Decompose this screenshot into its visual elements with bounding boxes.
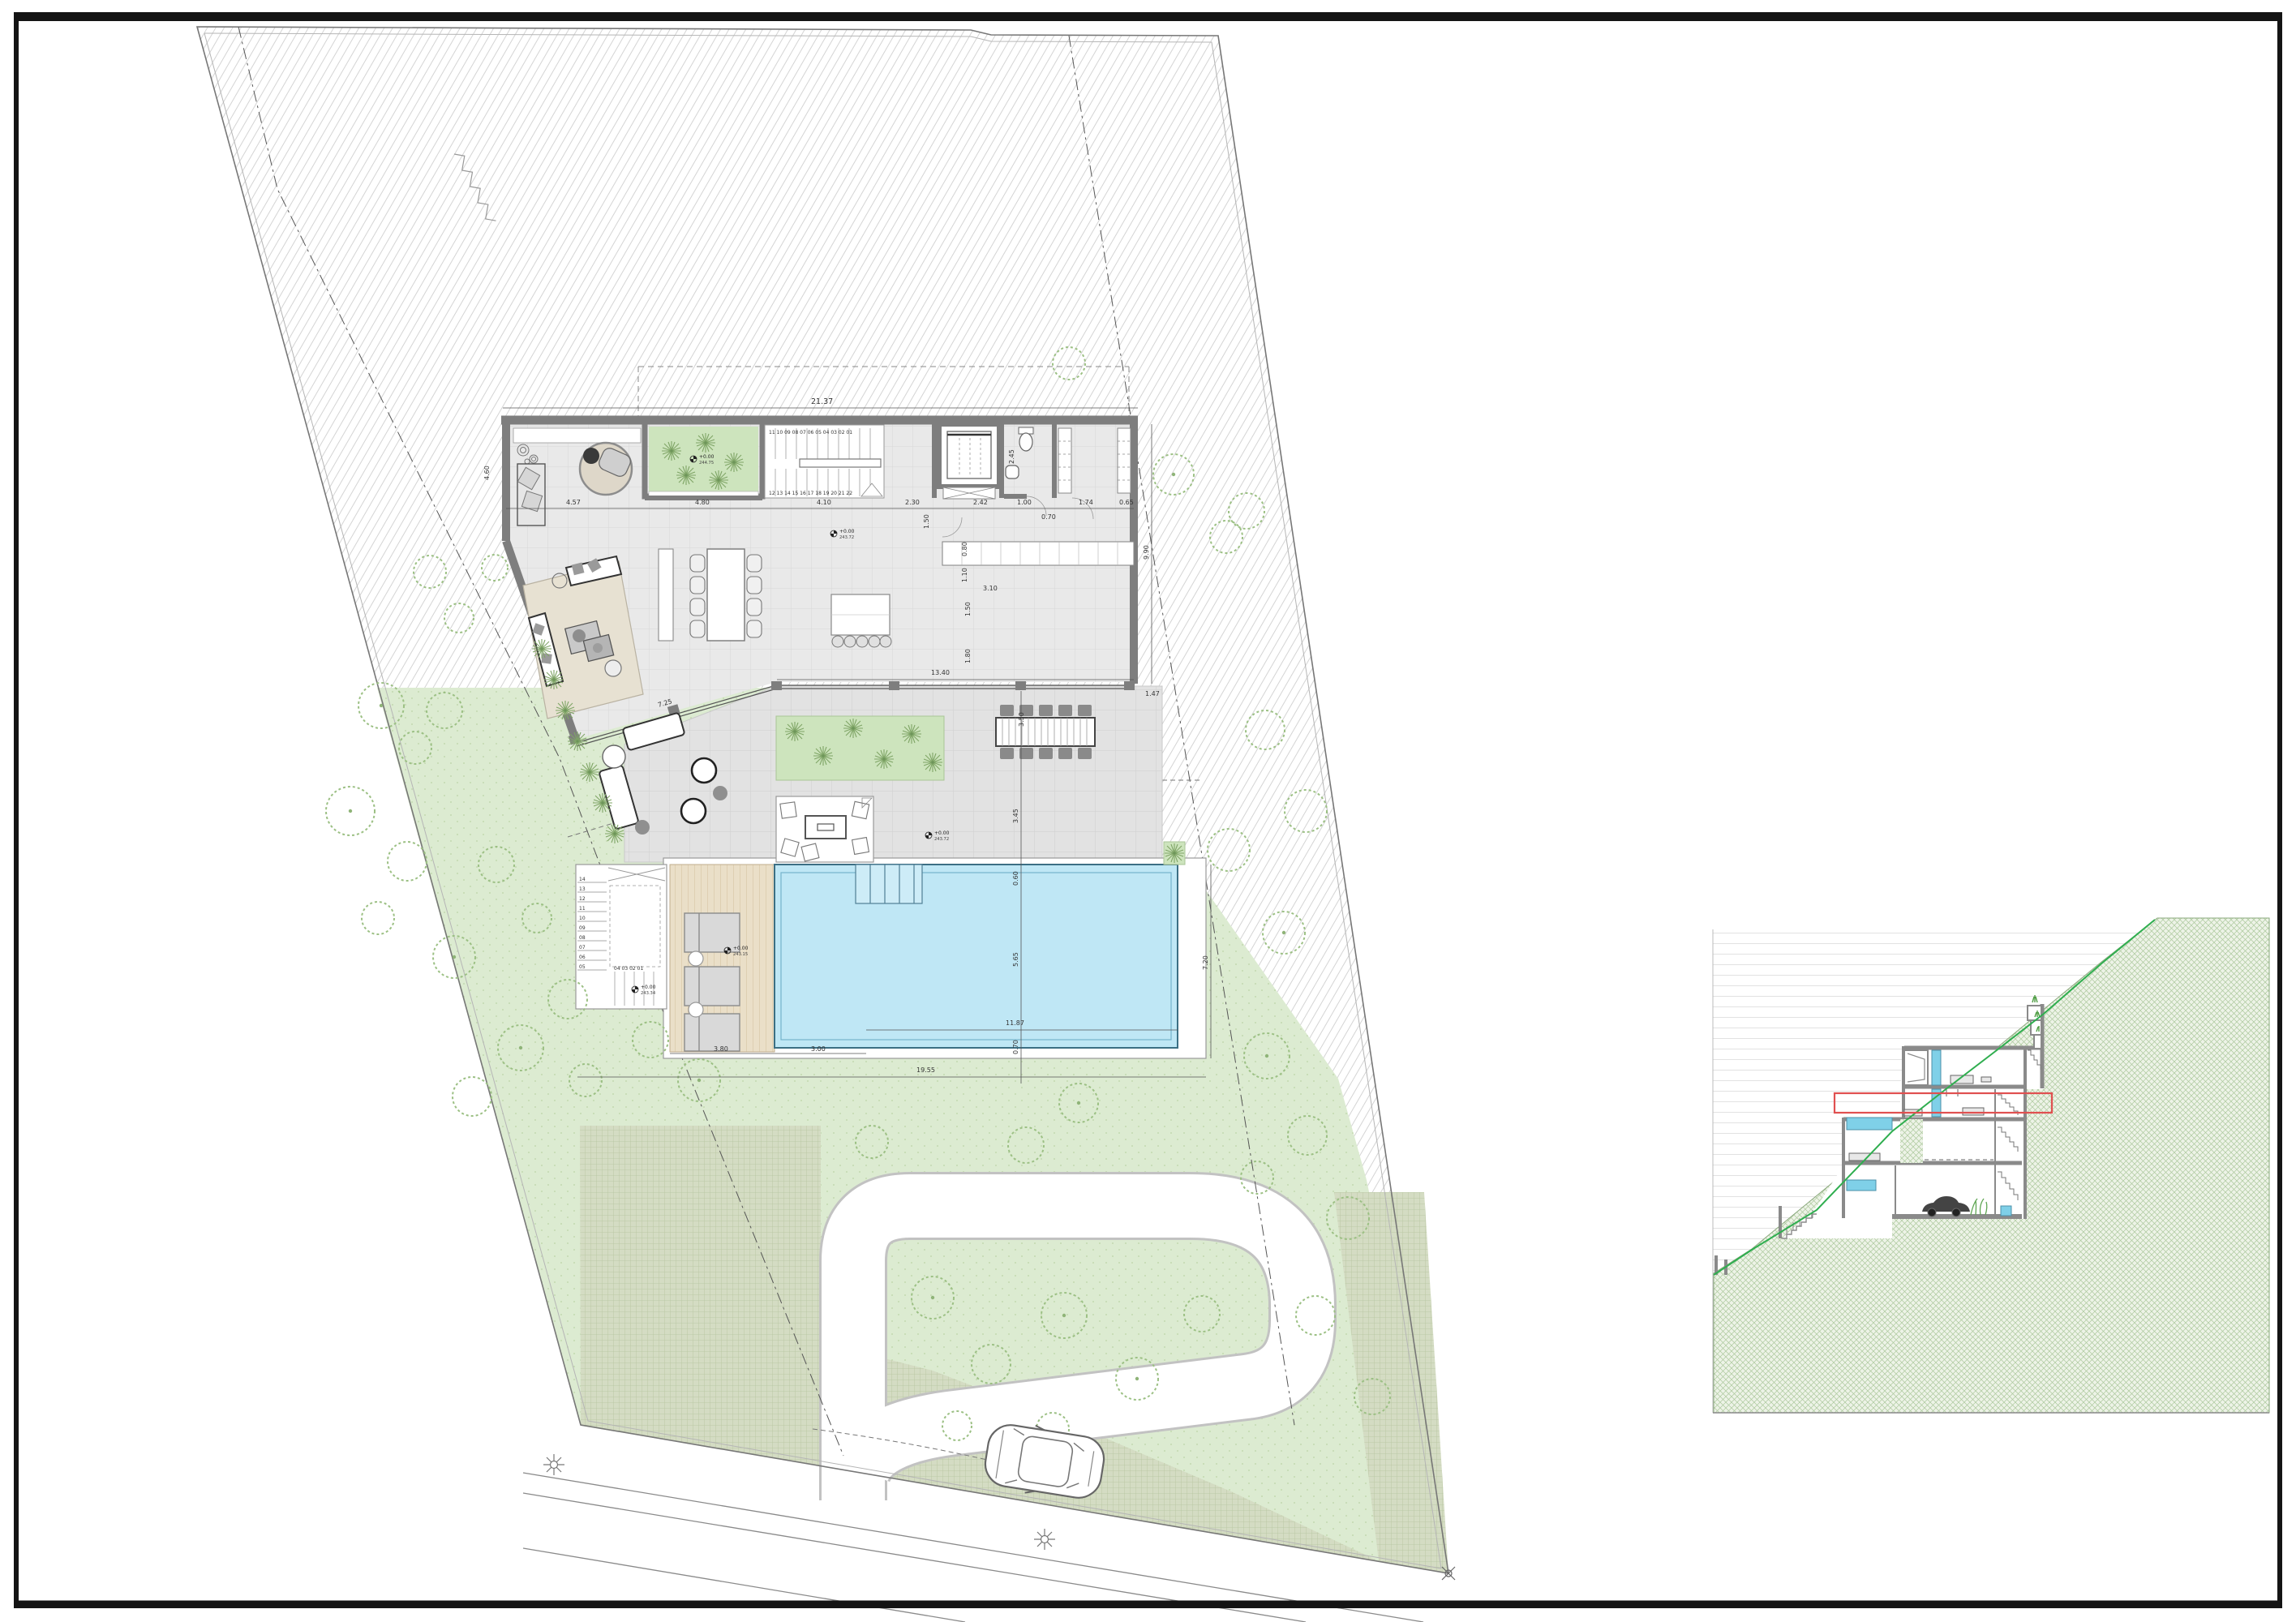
svg-text:2.30: 2.30 <box>905 499 920 506</box>
stair-numbers-lower: 12 13 14 15 16 17 18 19 20 21 22 <box>769 491 852 496</box>
terrain-patch <box>1900 1119 1923 1163</box>
svg-text:9.90: 9.90 <box>1143 545 1150 560</box>
svg-text:0.70: 0.70 <box>1012 1040 1019 1054</box>
svg-text:+0.00: +0.00 <box>733 946 749 951</box>
svg-text:4.60: 4.60 <box>483 466 491 480</box>
grass-tuft-icon <box>724 453 744 472</box>
svg-text:3.50: 3.50 <box>1018 712 1025 727</box>
grass-tuft-icon <box>785 722 805 741</box>
pool-steps <box>856 865 922 903</box>
stair-numbers-upper: 11 10 09 08 07 06 05 04 03 02 01 <box>769 430 852 436</box>
svg-text:+0.00: +0.00 <box>839 529 855 534</box>
svg-text:243.72: 243.72 <box>839 535 854 540</box>
streetlight-icon <box>1034 1529 1055 1550</box>
driveway-pavers-west <box>580 1126 821 1465</box>
svg-text:06: 06 <box>579 955 586 960</box>
svg-text:0.60: 0.60 <box>1012 871 1019 886</box>
elevator <box>939 424 999 499</box>
boundary-marker <box>1442 1567 1455 1580</box>
svg-text:13.40: 13.40 <box>931 669 950 676</box>
bar-stools <box>832 636 891 647</box>
svg-text:244.75: 244.75 <box>699 461 714 466</box>
svg-text:21.37: 21.37 <box>811 397 833 406</box>
svg-text:1.50: 1.50 <box>923 514 930 529</box>
interior-staircase: 11 10 09 08 07 06 05 04 03 02 01 12 13 1… <box>765 425 884 498</box>
grass-tuft-icon <box>813 746 833 766</box>
svg-text:12: 12 <box>579 896 586 902</box>
site-plan: 14 13 12 11 10 09 08 07 06 05 04 03 02 0… <box>197 27 1455 1622</box>
svg-text:0.65: 0.65 <box>1119 499 1134 506</box>
deck-side-table <box>689 1002 703 1017</box>
stair-handrail <box>800 459 881 467</box>
svg-text:3.45: 3.45 <box>1012 809 1019 823</box>
sink-top-floor <box>1981 1077 1991 1082</box>
svg-text:1.50: 1.50 <box>964 602 972 616</box>
svg-text:2.42: 2.42 <box>973 499 988 506</box>
grass-tuft-icon <box>902 724 921 744</box>
svg-text:1.47: 1.47 <box>1145 690 1160 697</box>
svg-text:4.80: 4.80 <box>695 499 710 506</box>
svg-text:13: 13 <box>579 886 586 892</box>
dining-table <box>707 549 745 641</box>
svg-text:+0.00: +0.00 <box>641 985 656 990</box>
svg-text:07: 07 <box>579 945 586 950</box>
grass-tuft-icon <box>696 433 715 453</box>
grass-tuft-icon <box>676 466 696 485</box>
kitchen-counter <box>942 542 1134 565</box>
stool <box>635 820 650 835</box>
sofa-pillow <box>541 653 552 664</box>
deck-side-table <box>689 951 703 966</box>
corner-planter <box>1164 842 1185 865</box>
svg-text:+0.00: +0.00 <box>934 830 950 836</box>
grass-tuft-icon <box>923 753 942 772</box>
svg-text:+0.00: +0.00 <box>699 454 715 460</box>
svg-text:243.15: 243.15 <box>733 952 748 957</box>
rattan-chair <box>692 758 716 783</box>
architectural-sheet: 14 13 12 11 10 09 08 07 06 05 04 03 02 0… <box>0 0 2296 1622</box>
svg-text:1.80: 1.80 <box>964 649 972 663</box>
svg-text:11.87: 11.87 <box>1006 1019 1024 1027</box>
streetlight-icon <box>543 1454 564 1475</box>
svg-text:243.34: 243.34 <box>641 991 656 996</box>
pouf <box>605 660 621 676</box>
grass-tuft-icon <box>709 470 728 490</box>
drawing-sheet: 14 13 12 11 10 09 08 07 06 05 04 03 02 0… <box>0 0 2296 1622</box>
svg-text:3.00: 3.00 <box>811 1045 826 1053</box>
svg-text:1.74: 1.74 <box>1079 499 1093 506</box>
round-coffee-table <box>603 745 625 768</box>
svg-text:10: 10 <box>579 916 586 921</box>
svg-text:3.10: 3.10 <box>983 585 998 592</box>
table-mid-floor <box>1963 1108 1984 1115</box>
svg-text:09: 09 <box>579 925 586 931</box>
grass-tuft-icon <box>874 749 894 769</box>
toilet <box>1019 433 1032 451</box>
svg-text:5.65: 5.65 <box>1012 952 1019 967</box>
svg-text:4.10: 4.10 <box>817 499 831 506</box>
swimming-pool <box>775 865 1178 1048</box>
svg-text:7.20: 7.20 <box>1202 955 1209 970</box>
svg-text:04 03 02 01: 04 03 02 01 <box>614 966 643 972</box>
firepit-lounge <box>776 796 873 862</box>
sideboard <box>659 549 673 641</box>
svg-text:4.57: 4.57 <box>566 499 581 506</box>
svg-text:11: 11 <box>579 906 586 912</box>
outdoor-dining <box>996 705 1095 759</box>
washbasin <box>1006 466 1019 478</box>
svg-text:19.55: 19.55 <box>916 1066 935 1074</box>
svg-text:05: 05 <box>579 964 586 970</box>
svg-text:1.10: 1.10 <box>961 568 968 582</box>
svg-text:08: 08 <box>579 935 586 941</box>
svg-text:0.80: 0.80 <box>961 542 968 556</box>
terrace-planter <box>776 716 944 780</box>
svg-text:2.45: 2.45 <box>1008 449 1015 464</box>
stool <box>713 786 727 800</box>
grass-tuft-icon <box>1165 843 1184 863</box>
svg-text:14: 14 <box>579 877 586 882</box>
sun-loungers <box>685 913 740 1051</box>
grass-tuft-icon <box>843 719 863 738</box>
svg-text:243.72: 243.72 <box>934 837 949 842</box>
section-drawing <box>1713 918 2269 1413</box>
svg-text:0.70: 0.70 <box>1041 513 1056 521</box>
rattan-chair <box>681 799 706 823</box>
svg-text:3.80: 3.80 <box>714 1045 728 1053</box>
grass-tuft-icon <box>662 441 681 461</box>
svg-text:1.00: 1.00 <box>1017 499 1032 506</box>
pouf <box>583 448 599 464</box>
